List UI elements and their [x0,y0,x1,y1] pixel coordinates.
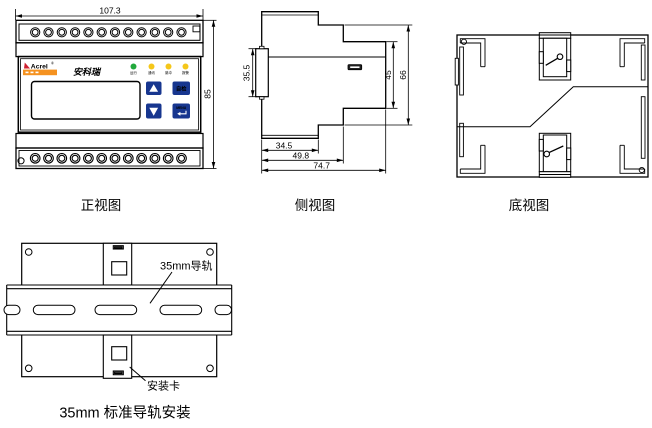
terminal-row-top [31,28,186,37]
led-label: 运行 [130,70,137,75]
clip-label: 安装卡 [147,379,180,393]
bottom-view: 底视图 [440,0,652,220]
keypad: 自检 MENU [146,82,190,119]
rail-clip-top [539,33,570,80]
registered-mark: ® [51,61,54,66]
install-view-caption: 35mm 标准导轨安装 [59,405,190,422]
side-profile-outline [262,12,386,139]
top-right-slot [193,26,200,32]
front-view: 107.3 85 [0,0,240,220]
self-test-button-label: 自检 [176,84,187,92]
led-label: 通讯 [148,70,155,75]
clip-tab [260,46,265,48]
terminal-row-bottom [30,154,186,164]
tab-square-hole [112,347,127,360]
install-view: 35mm导轨 安装卡 35mm 标准导轨安装 [0,228,250,428]
logo-bar-text-marks [26,72,39,74]
tab-square-hole [112,262,127,275]
clip-lever-pin [544,151,550,157]
dim-arrow-icon [262,159,269,163]
mounting-tab-top [103,243,131,285]
rail-clip-bottom [539,133,570,177]
dim-arrow-icon [251,49,255,56]
pulse-led-icon [166,64,172,70]
front-height-dim-text: 85 [203,89,213,99]
front-view-caption: 正视图 [81,198,122,213]
dim-arrow-icon [379,169,386,173]
led-indicators: 运行 通讯 脉冲 报警 [130,64,189,76]
logo-mark-icon [24,63,30,69]
dim-arrow-icon [16,14,23,18]
dim-arrow-icon [392,102,396,109]
dim-arrow-icon [392,42,396,49]
mounting-tab-bottom [103,335,131,378]
left-edge-tab [455,58,458,85]
engineering-drawing-sheet: 107.3 85 [0,0,652,428]
rail-slots [4,305,232,314]
side-view: 35.5 45 66 [240,0,420,220]
dim-arrow-icon [262,149,269,153]
alarm-led-icon [183,64,189,70]
dim-depth-a-text: 34.5 [276,141,293,151]
dim-arrow-icon [197,14,204,18]
side-slot-inner [350,66,359,68]
din-rail [4,285,232,335]
dim-body-height-text: 45 [383,70,393,80]
dim-arrow-icon [262,169,269,173]
clip-lever-pin [557,54,563,60]
dim-arrow-icon [337,159,344,163]
led-label: 脉冲 [165,70,172,75]
dim-arrow-icon [407,119,411,126]
dim-arrow-icon [212,162,216,169]
dim-arrow-icon [407,25,411,32]
dim-clip-height-text: 35.5 [242,64,252,81]
dim-arrow-icon [312,149,319,153]
dim-depth-b-text: 49.8 [293,151,310,161]
dim-depth-c-text: 74.7 [313,161,330,171]
comm-led-icon [149,64,155,70]
side-view-caption: 侧视图 [295,198,336,213]
run-led-icon [131,64,137,70]
lcd-screen [32,82,141,120]
bottom-view-caption: 底视图 [509,198,550,213]
acrel-logo: Acrel ® [23,61,57,76]
menu-button-label: MENU [176,106,187,110]
dim-overall-height-text: 66 [398,70,408,80]
brand-chinese-text: 安科瑞 [73,67,102,77]
led-label: 报警 [182,70,189,75]
front-width-dim-text: 107.3 [99,6,121,16]
dim-arrow-icon [251,90,255,97]
din-clip-block [256,49,269,97]
logo-brand-text: Acrel [31,63,48,70]
rail-label: 35mm导轨 [160,259,213,273]
dim-arrow-icon [212,20,216,27]
clip-tab [260,97,265,99]
